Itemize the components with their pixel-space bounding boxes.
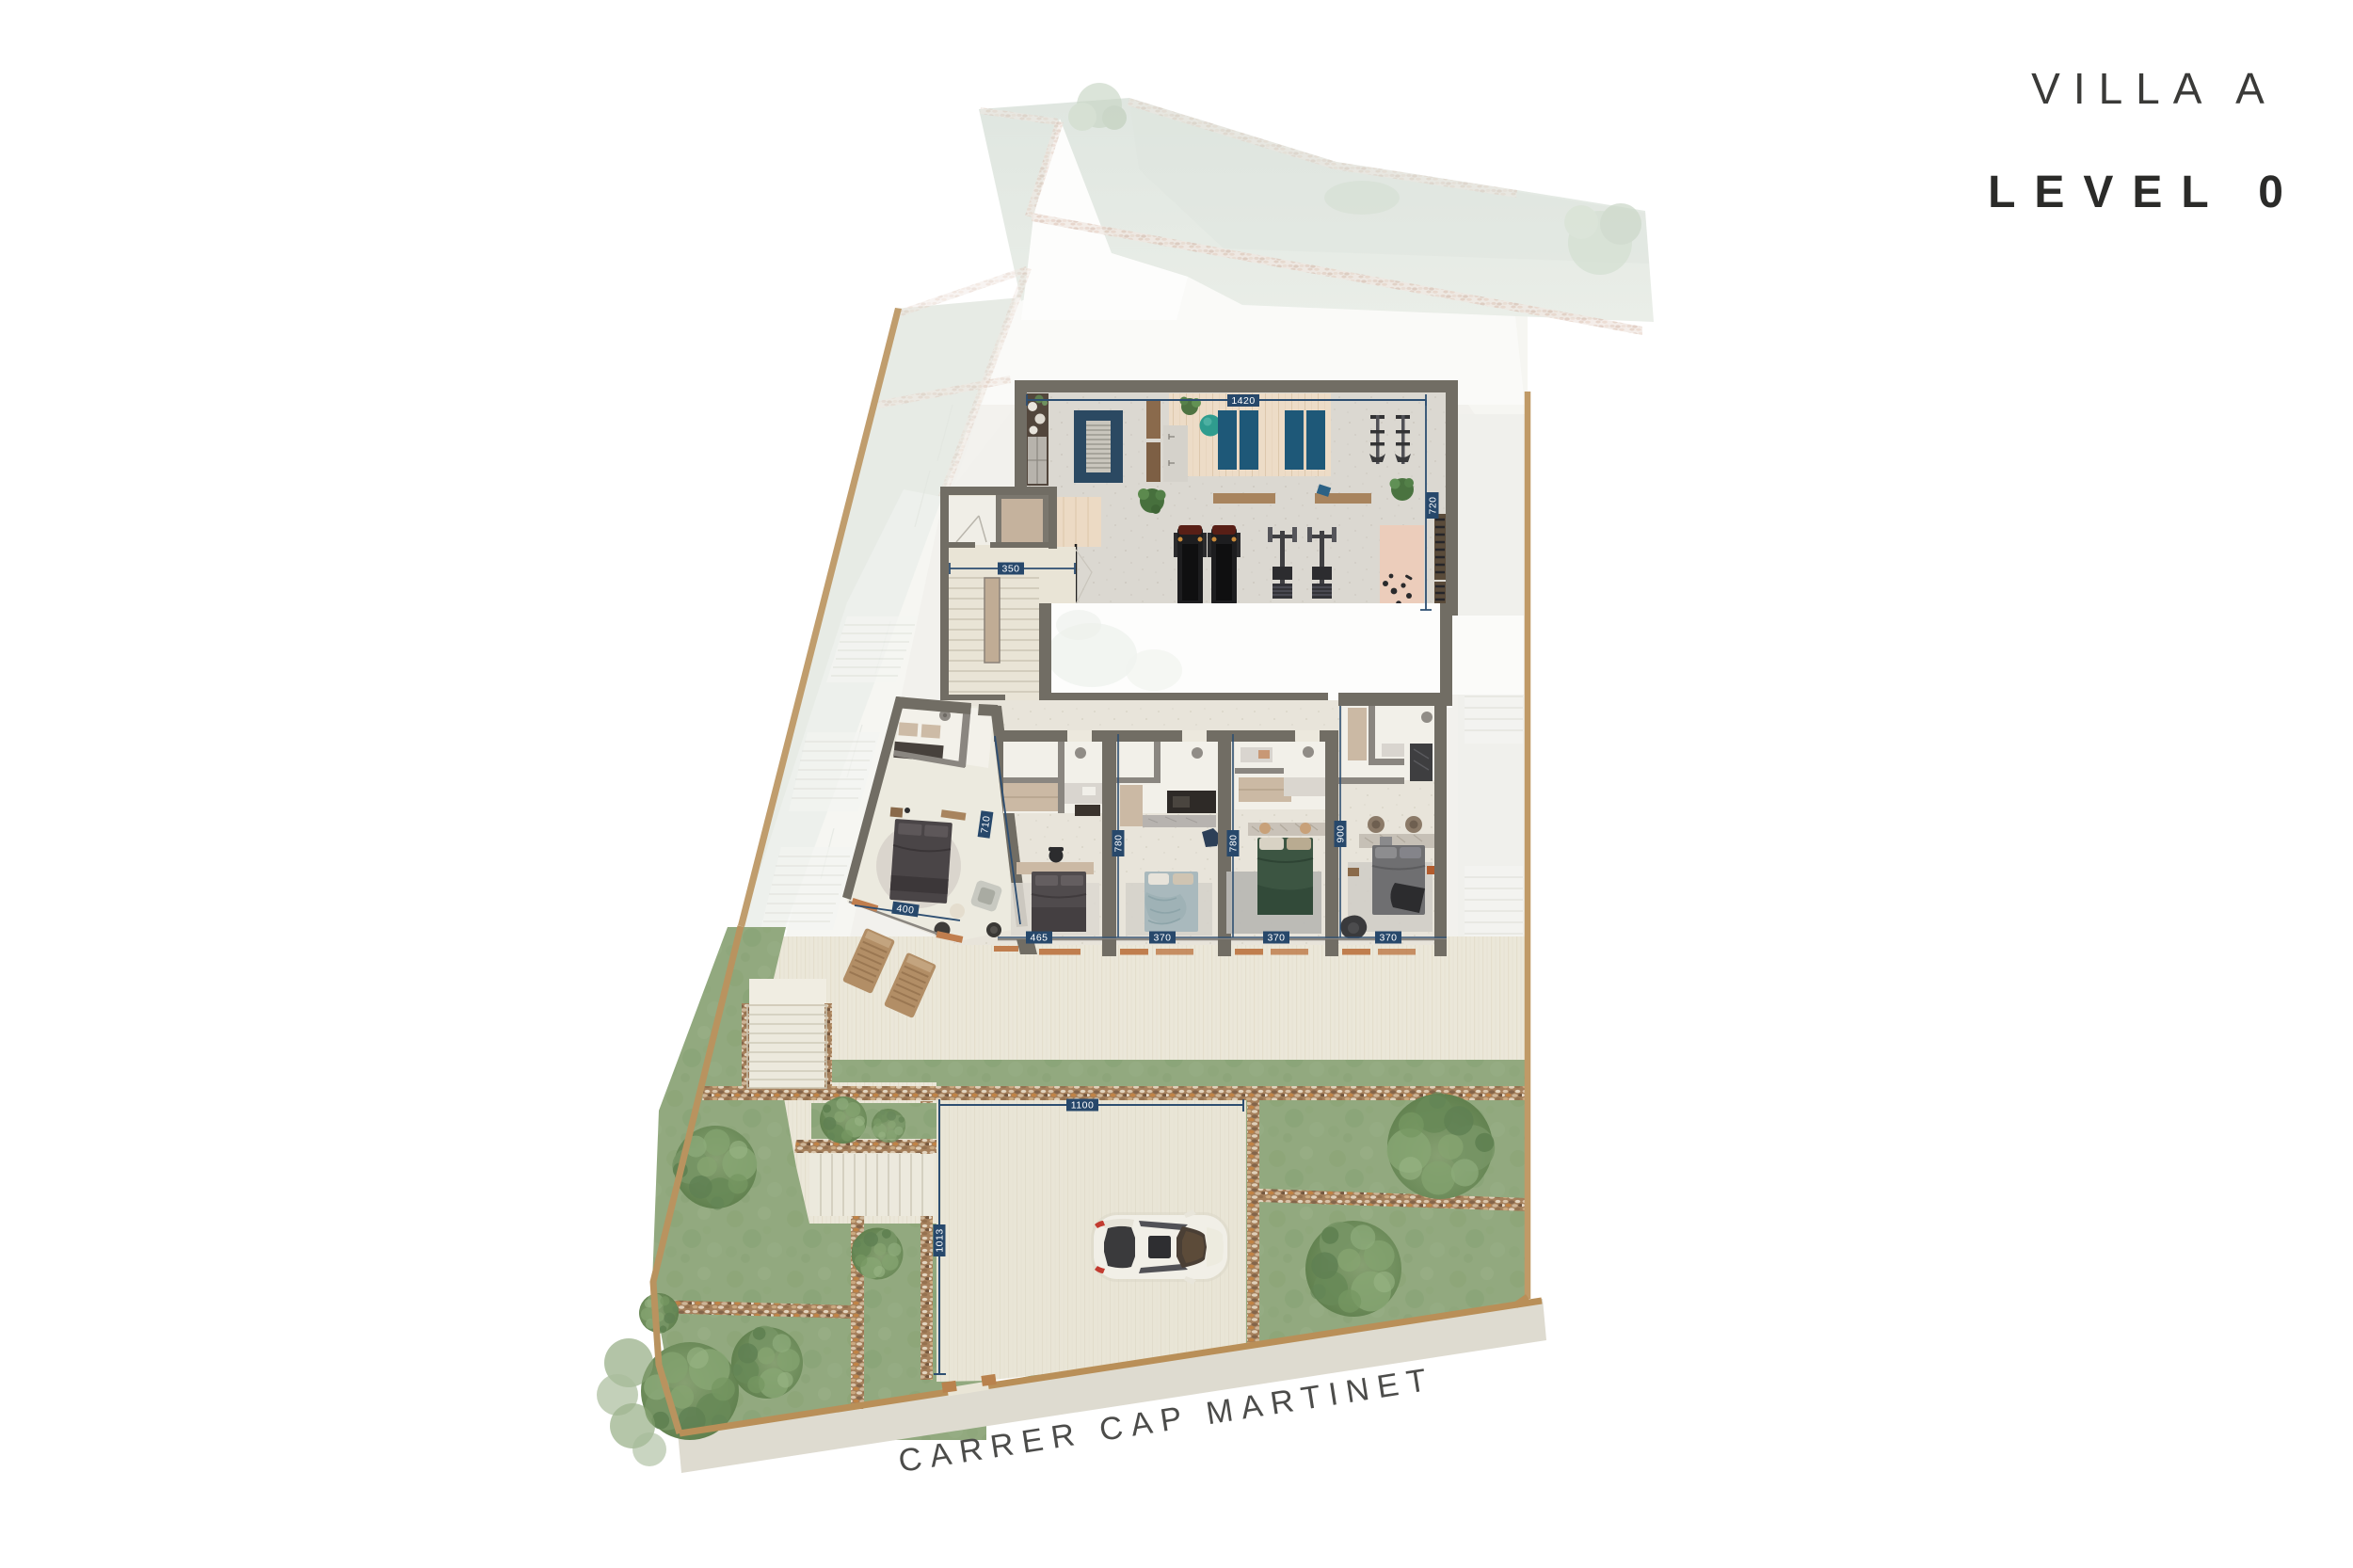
svg-text:370: 370 bbox=[1379, 933, 1397, 944]
svg-text:780: 780 bbox=[1228, 834, 1240, 852]
svg-text:1420: 1420 bbox=[1231, 395, 1255, 407]
svg-text:465: 465 bbox=[1030, 933, 1048, 944]
svg-text:370: 370 bbox=[1267, 933, 1285, 944]
svg-text:1100: 1100 bbox=[1071, 1100, 1095, 1112]
svg-text:350: 350 bbox=[1001, 564, 1019, 575]
svg-text:720: 720 bbox=[1428, 496, 1439, 514]
svg-text:370: 370 bbox=[1153, 933, 1171, 944]
svg-text:1013: 1013 bbox=[935, 1228, 946, 1252]
svg-text:LEVEL 0: LEVEL 0 bbox=[1988, 168, 2302, 217]
svg-text:900: 900 bbox=[1336, 824, 1347, 842]
svg-text:780: 780 bbox=[1113, 834, 1125, 852]
svg-text:VILLA A: VILLA A bbox=[2031, 64, 2278, 113]
